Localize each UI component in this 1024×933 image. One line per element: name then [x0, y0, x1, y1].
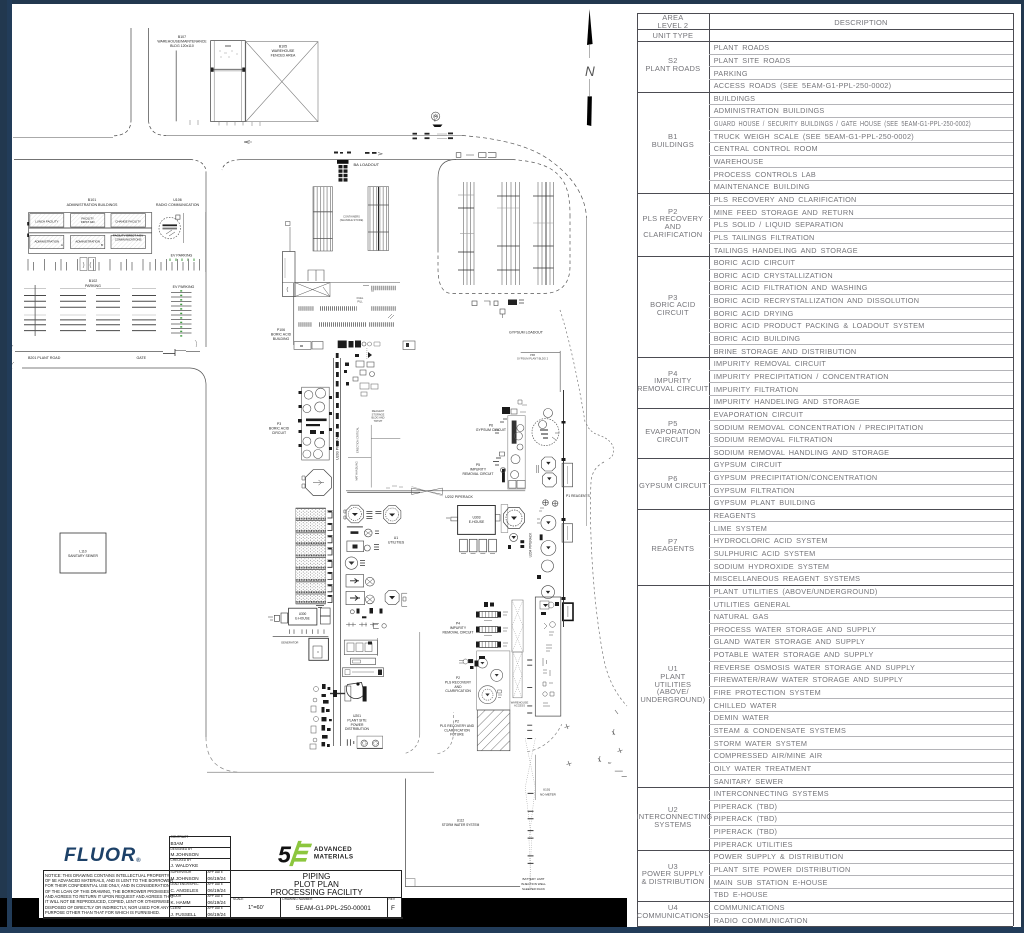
svg-text:5: 5	[278, 842, 292, 868]
svg-text:MATERIALS: MATERIALS	[314, 853, 354, 860]
svg-text:ADVANCED: ADVANCED	[314, 846, 352, 853]
